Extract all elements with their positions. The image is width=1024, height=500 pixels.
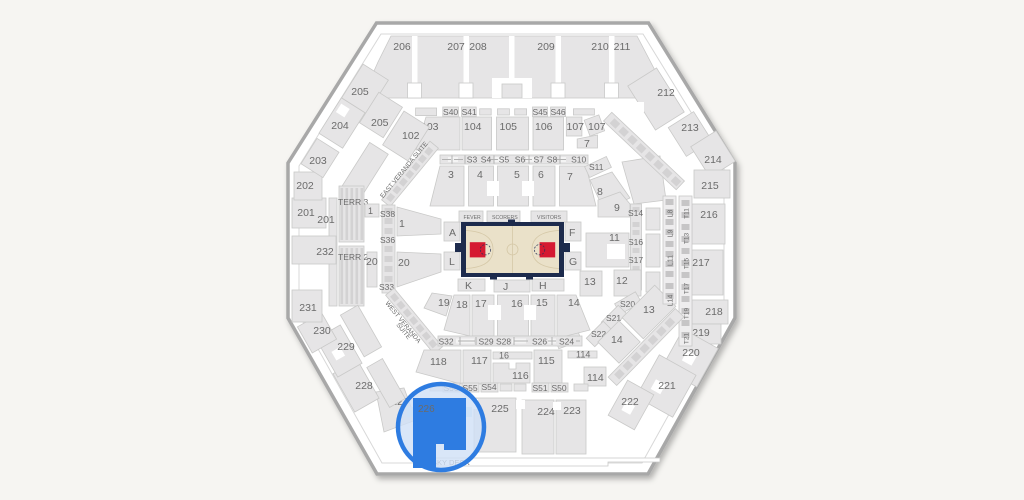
svg-text:18: 18	[456, 299, 468, 311]
svg-text:213: 213	[681, 122, 699, 134]
svg-text:218: 218	[705, 306, 723, 318]
svg-text:16: 16	[499, 351, 509, 361]
svg-text:212: 212	[657, 87, 675, 99]
svg-text:206: 206	[393, 41, 411, 53]
svg-text:20: 20	[366, 256, 378, 268]
svg-text:S29: S29	[478, 337, 493, 347]
svg-text:S17: S17	[628, 255, 643, 265]
svg-text:116: 116	[512, 370, 529, 382]
svg-text:S32: S32	[438, 337, 453, 347]
svg-text:K: K	[465, 280, 472, 292]
svg-text:L11: L11	[668, 255, 675, 266]
svg-text:225: 225	[491, 403, 509, 415]
svg-text:L9: L9	[668, 230, 675, 238]
svg-text:S51: S51	[532, 383, 547, 393]
svg-text:S8: S8	[547, 155, 558, 165]
svg-text:TERR 3: TERR 3	[338, 197, 369, 207]
svg-text:19: 19	[438, 297, 450, 309]
svg-text:T13: T13	[684, 233, 691, 245]
svg-text:207: 207	[447, 41, 465, 53]
svg-text:1: 1	[399, 218, 405, 230]
svg-text:14: 14	[611, 334, 623, 346]
svg-text:S3: S3	[467, 155, 478, 165]
svg-text:114: 114	[576, 350, 590, 360]
svg-text:222: 222	[621, 396, 639, 408]
svg-text:S26: S26	[532, 337, 547, 347]
svg-text:4: 4	[477, 169, 483, 181]
svg-text:VISITORS: VISITORS	[537, 215, 562, 221]
svg-text:L: L	[449, 256, 455, 268]
svg-text:S7: S7	[533, 155, 544, 165]
svg-text:232: 232	[316, 246, 334, 258]
svg-text:208: 208	[469, 41, 487, 53]
svg-text:12: 12	[616, 275, 628, 287]
svg-text:205: 205	[351, 86, 369, 98]
svg-text:223: 223	[563, 405, 581, 417]
svg-text:202: 202	[296, 180, 314, 192]
svg-text:118: 118	[430, 356, 447, 368]
svg-text:205: 205	[371, 117, 389, 129]
svg-text:A: A	[449, 227, 456, 239]
svg-text:T21: T21	[684, 333, 691, 345]
svg-text:107: 107	[588, 121, 606, 133]
svg-text:S24: S24	[559, 337, 574, 347]
svg-text:S14: S14	[628, 208, 643, 218]
svg-text:S16: S16	[628, 237, 643, 247]
svg-text:S4: S4	[481, 155, 492, 165]
svg-text:6: 6	[538, 169, 544, 181]
svg-text:S10: S10	[571, 155, 586, 165]
svg-text:S41: S41	[462, 107, 477, 117]
svg-text:102: 102	[402, 130, 420, 142]
svg-text:201: 201	[317, 214, 335, 226]
svg-text:G: G	[569, 256, 577, 268]
svg-text:13: 13	[643, 304, 655, 316]
svg-text:231: 231	[299, 302, 317, 314]
svg-text:204: 204	[331, 120, 349, 132]
svg-text:3: 3	[448, 169, 454, 181]
svg-text:229: 229	[337, 341, 355, 353]
svg-text:114: 114	[587, 372, 604, 384]
svg-text:224: 224	[537, 406, 555, 418]
svg-text:209: 209	[537, 41, 555, 53]
svg-text:J: J	[503, 281, 508, 293]
svg-text:216: 216	[700, 209, 718, 221]
svg-text:115: 115	[538, 355, 555, 367]
svg-text:L14: L14	[668, 295, 675, 307]
svg-text:T11: T11	[684, 208, 691, 219]
svg-text:S38: S38	[380, 209, 395, 219]
svg-text:F: F	[569, 227, 575, 239]
svg-text:20: 20	[398, 257, 410, 269]
svg-text:7: 7	[567, 171, 573, 183]
svg-text:8: 8	[597, 186, 603, 198]
svg-text:S28: S28	[496, 337, 511, 347]
svg-text:S5: S5	[499, 155, 510, 165]
svg-text:16: 16	[511, 298, 523, 310]
svg-text:T19: T19	[684, 308, 691, 320]
svg-text:211: 211	[614, 41, 631, 53]
svg-text:T15: T15	[684, 258, 691, 270]
svg-text:17: 17	[475, 298, 487, 310]
svg-text:S11: S11	[589, 162, 604, 172]
svg-text:105: 105	[500, 121, 518, 133]
svg-text:5: 5	[514, 169, 520, 181]
svg-text:11: 11	[609, 232, 620, 244]
svg-text:S45: S45	[532, 107, 547, 117]
svg-text:106: 106	[535, 121, 553, 133]
svg-text:S6: S6	[515, 155, 526, 165]
svg-text:201: 201	[297, 207, 315, 219]
svg-text:L8: L8	[668, 210, 675, 218]
svg-text:226: 226	[418, 404, 435, 415]
svg-text:T17: T17	[684, 283, 691, 295]
svg-text:S54: S54	[481, 382, 496, 392]
svg-text:228: 228	[355, 380, 373, 392]
svg-text:FEVER: FEVER	[464, 215, 482, 221]
svg-text:107: 107	[567, 121, 585, 133]
svg-text:104: 104	[464, 121, 482, 133]
svg-text:203: 203	[309, 155, 327, 167]
svg-text:S40: S40	[443, 107, 458, 117]
svg-text:7: 7	[584, 138, 590, 150]
svg-text:221: 221	[658, 380, 676, 392]
svg-text:9: 9	[614, 202, 620, 214]
svg-text:15: 15	[536, 297, 548, 309]
svg-text:220: 220	[682, 347, 700, 359]
svg-text:215: 215	[701, 180, 719, 192]
svg-text:217: 217	[692, 257, 710, 269]
svg-text:210: 210	[591, 41, 609, 53]
svg-text:230: 230	[313, 325, 331, 337]
svg-text:14: 14	[568, 297, 580, 309]
svg-text:H: H	[539, 280, 547, 292]
svg-text:13: 13	[584, 276, 596, 288]
svg-text:S50: S50	[551, 383, 566, 393]
svg-text:117: 117	[471, 355, 488, 367]
svg-text:S46: S46	[550, 107, 565, 117]
svg-text:S36: S36	[380, 235, 395, 245]
svg-text:214: 214	[704, 154, 722, 166]
svg-text:1: 1	[368, 206, 373, 216]
svg-text:TERR 2: TERR 2	[338, 252, 369, 262]
